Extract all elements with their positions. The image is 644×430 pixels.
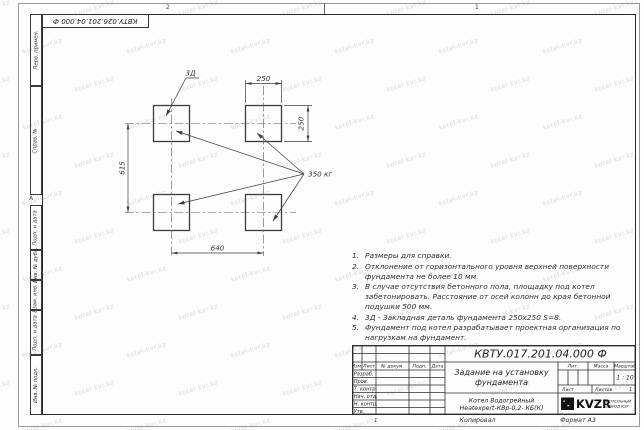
watermark-text: kotel-kvr.kz [0,74,11,94]
dim-left-label: 615 [118,161,127,175]
dim-right-label: 250 [297,116,306,130]
load-label: 350 кг [308,170,332,179]
foundation-plan-drawing: 250 250 615 640 3Д 350 кг [100,55,345,260]
col-izm: Изм. [352,364,362,370]
top-stamp-number: КВТУ.026.201.04.000 Ф [53,17,137,25]
col-dokum: № докум. [380,364,404,370]
sheets-label: Листов [594,387,612,393]
col-data: Дата [431,364,444,370]
scale-label: Масштаб [614,364,636,370]
note-item: 4.3Д - Закладная деталь фундамента 250х2… [352,313,634,323]
margin-cell-perv-primen: Перв. примен. [30,14,42,86]
drawing-sheet: 2 1 А Перв. примен. Справ. № Подп. и дат… [0,0,644,430]
note-item: 1.Размеры для справки. [352,251,634,261]
dim-bottom-label: 640 [211,244,225,253]
margin-cell-podp-data-1: Подп. и дата [30,205,42,250]
scale-value: 1 : 10 [616,375,633,382]
product-line1: Котел Водогрейный [469,398,535,405]
sheets-value: 1 [629,387,632,393]
logo-subtext-2: ЗАВОД КЗР [606,404,629,409]
watermark-text: kotel-kvr.kz [0,150,11,170]
embed-detail-label: 3Д [185,69,196,78]
notes-list: 1.Размеры для справки. 2.Отклонение от г… [352,251,634,344]
zone-label-a: А [29,195,33,202]
row-tkontr: Т. контр. [354,387,377,393]
product-line2: Heatexpert-КВр-0,2- КБ(К) [460,404,544,412]
foundation-pads [154,106,282,231]
kvzr-logo-icon [561,398,574,411]
row-prov: Пров. [354,379,369,385]
lit-label: Лит. [567,364,579,370]
watermark-text: kotel-kvr.kz [0,378,11,398]
title-block: КВТУ.017.201.04.000 Ф Изм. Лист № докум.… [352,345,636,415]
sheet-label: Лист [561,387,574,393]
row-nachotd: Нач. отд. [354,394,378,400]
fold-mark: 1 [374,418,378,424]
doc-number: КВТУ.017.201.04.000 Ф [474,348,607,361]
copied-label: Копировал [440,417,515,424]
format-label: Формат А3 [543,417,613,424]
dim-top-label: 250 [257,74,271,83]
note-item: 3.В случае отсутствия бетонного пола, пл… [352,282,634,311]
watermark-text: kotel-kvr.kz [0,226,11,246]
mass-label: Масса [594,364,609,370]
margin-cell-vzam-inv: Взам. инв. № [30,280,42,310]
drawing-title-line2: фундамента [475,378,528,387]
col-list: Лист [362,364,375,370]
watermark-text: kotel-kvr.kz [0,0,11,18]
margin-cell-inv-podl: Инв. № подл. [30,355,42,415]
margin-cell-inv-dubl: Инв. № дубл. [30,250,42,280]
dimension-lines [128,78,312,253]
margin-cell-podp-data-2: Подп. и дата [30,310,42,355]
row-nkontr: Н. контр. [354,402,378,408]
watermark-text: kotel-kvr.kz [0,302,11,322]
row-razrab: Разраб. [354,372,374,378]
note-item: 5.Фундамент под котел разрабатывает прое… [352,323,634,343]
zone-tick [324,3,325,14]
margin-cell-sprav-no: Справ. № [30,86,42,195]
col-podp: Подп. [413,364,427,370]
note-item: 2.Отклонение от горизонтального уровня в… [352,262,634,282]
zone-label-1: 1 [475,4,479,11]
drawing-title-line1: Задание на установку [454,368,548,377]
zone-label-2: 2 [166,4,170,11]
top-stamp-box: КВТУ.026.201.04.000 Ф [42,14,149,28]
row-utv: Утв. [354,409,365,415]
